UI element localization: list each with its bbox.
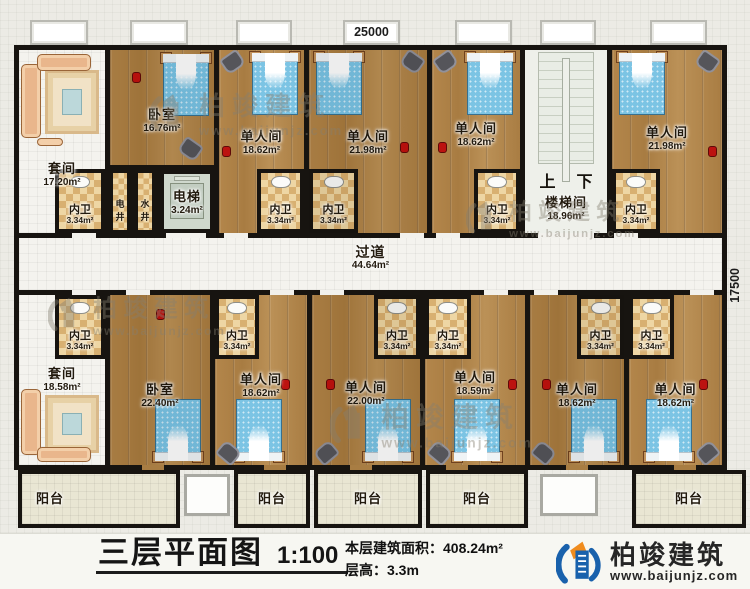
chair [694, 50, 722, 75]
door-opening [436, 233, 460, 238]
balcony: 阳台 [632, 470, 746, 528]
stool [699, 379, 708, 390]
room-name: 阳台 [36, 492, 64, 507]
toilet-icon [626, 176, 646, 188]
door-opening [72, 233, 96, 238]
balcony: 阳台 [18, 470, 180, 528]
stool [156, 309, 165, 320]
room-name: 内卫 [633, 330, 670, 343]
sofa [21, 54, 103, 146]
room-area: 44.64m² [19, 260, 722, 272]
room-suite-bottom: 内卫 3.34m² 套间 18.58m² [19, 295, 105, 465]
floorplan-canvas: 25000 17500 套间 17.20m² 内卫 3.34m² [0, 0, 750, 589]
brand-logo-icon [556, 538, 602, 586]
shaft-label: 水井 [138, 197, 152, 223]
room-name: 阳台 [238, 492, 306, 507]
bed [313, 51, 365, 117]
title-block: 三层平面图 1:100 本层建筑面积：408.24m² 层高：3.3m 柏竣建筑… [0, 533, 750, 589]
corridor: 过道 44.64m² [19, 238, 722, 290]
floor-area-line: 本层建筑面积：408.24m² [345, 538, 503, 560]
blanket [584, 425, 604, 461]
bathroom: 内卫 3.34m² [309, 169, 358, 233]
room-name: 单人间 [309, 130, 427, 145]
room-name: 内卫 [581, 330, 620, 343]
chair [426, 439, 454, 465]
stool [400, 142, 409, 153]
room-stairwell: 上 下 楼梯间 18.96m² [525, 50, 607, 233]
window [455, 20, 512, 45]
room-single-t2: 单人间 21.98m² 内卫 3.34m² [309, 50, 427, 233]
shaft-water: 水井 [135, 170, 155, 233]
drawing-title: 三层平面图 [98, 537, 263, 568]
bed [616, 51, 668, 117]
room-name: 套间 [19, 367, 105, 382]
toilet-icon [271, 176, 291, 188]
door-opening [534, 290, 558, 295]
rug-center [62, 89, 81, 115]
room-name: 单人间 [215, 373, 307, 388]
toilet-icon [642, 302, 662, 314]
toilet-icon [591, 302, 611, 314]
door-opening [224, 233, 248, 238]
room-bedroom-top: 卧室 16.76m² [110, 50, 214, 165]
sofa-back [21, 64, 41, 138]
bathroom: 内卫 3.34m² [257, 169, 304, 233]
toilet-icon [70, 176, 90, 188]
stool [222, 146, 231, 157]
balcony: 阳台 [426, 470, 528, 528]
room-single-b5: 内卫 3.34m² 单人间 18.62m² [629, 295, 722, 465]
bathroom: 内卫 3.34m² [577, 295, 624, 359]
sofa-seat [37, 138, 63, 146]
rug [45, 395, 99, 453]
blanket [265, 53, 285, 89]
room-name: 内卫 [59, 330, 101, 343]
stool [508, 379, 517, 390]
room-single-t3: 单人间 18.62m² 内卫 3.34m² [432, 50, 520, 233]
blanket [632, 53, 652, 89]
door-opening [690, 290, 714, 295]
bed [152, 397, 204, 463]
room-name: 内卫 [429, 330, 467, 343]
shaft-label: 电井 [113, 197, 127, 223]
room-area: 3.34m² [581, 342, 620, 352]
room-name: 楼梯间 [525, 196, 607, 211]
chair [432, 50, 459, 75]
dimension-right: 17500 [728, 268, 742, 303]
bed [451, 397, 503, 463]
floor-height-line: 层高：3.3m [345, 560, 503, 582]
stool [542, 379, 551, 390]
toilet-icon [227, 302, 247, 314]
drawing-scale: 1:100 [277, 544, 338, 568]
blanket [378, 425, 398, 461]
chair [177, 136, 205, 163]
stool [132, 72, 141, 83]
bed [464, 51, 516, 117]
bathroom: 内卫 3.34m² [629, 295, 674, 359]
building-outline: 套间 17.20m² 内卫 3.34m² 卧室 16.76m² [14, 45, 727, 470]
toilet-icon [70, 302, 90, 314]
door-opening [166, 233, 206, 238]
brand-url: www.baijunjz.com [610, 568, 738, 583]
bed [233, 397, 285, 463]
bathroom: 内卫 3.34m² [425, 295, 471, 359]
room-elevator: 电梯 3.24m² [160, 170, 214, 233]
room-name: 单人间 [219, 130, 304, 145]
stool [326, 379, 335, 390]
bed [362, 397, 414, 463]
room-area: 21.98m² [309, 145, 427, 157]
blanket [467, 425, 487, 461]
room-area: 3.34m² [633, 342, 670, 352]
sofa [21, 387, 103, 463]
elevator-car [170, 183, 204, 219]
blanket [329, 53, 349, 89]
window [540, 474, 598, 516]
door-opening [566, 465, 588, 470]
room-area: 3.34m² [59, 342, 101, 352]
room-single-b4: 内卫 3.34m² 单人间 18.62m² [530, 295, 624, 465]
room-name: 内卫 [59, 204, 101, 217]
door-opening [538, 233, 594, 238]
blanket [480, 53, 500, 89]
door-opening [72, 290, 96, 295]
room-suite-top: 套间 17.20m² 内卫 3.34m² [19, 50, 105, 233]
drawing-info: 本层建筑面积：408.24m² 层高：3.3m [345, 538, 503, 581]
window [130, 20, 188, 45]
window [650, 20, 707, 45]
blanket [168, 425, 188, 461]
room-area: 3.34m² [616, 216, 656, 226]
room-single-b3: 内卫 3.34m² 单人间 18.59m² [425, 295, 525, 465]
room-area: 16.76m² [110, 123, 214, 135]
door-opening [400, 233, 424, 238]
door-opening [484, 290, 508, 295]
window [236, 20, 292, 45]
room-area: 3.34m² [429, 342, 467, 352]
rug-center [62, 413, 81, 436]
chair [399, 50, 427, 75]
window [30, 20, 88, 45]
room-name: 过道 [19, 244, 722, 260]
room-single-t1: 单人间 18.62m² 内卫 3.34m² [219, 50, 304, 233]
stool [438, 142, 447, 153]
room-single-t4: 单人间 21.98m² 内卫 3.34m² [612, 50, 722, 233]
stair-rail [562, 58, 570, 182]
room-area: 3.34m² [59, 216, 101, 226]
toilet-icon [387, 302, 407, 314]
stool [281, 379, 290, 390]
room-area: 3.34m² [313, 216, 354, 226]
sofa-back [21, 389, 41, 455]
toilet-icon [438, 302, 458, 314]
room-area: 3.34m² [378, 342, 416, 352]
stool [708, 146, 717, 157]
toilet-icon [487, 176, 507, 188]
blanket [176, 54, 196, 90]
room-name: 内卫 [219, 330, 255, 343]
window [540, 20, 596, 45]
chair [694, 439, 722, 465]
bathroom: 内卫 3.34m² [55, 295, 105, 359]
chair [530, 439, 557, 465]
room-name: 阳台 [430, 492, 524, 507]
sofa-seat [37, 447, 91, 462]
chair [219, 50, 246, 75]
blanket [659, 425, 679, 461]
bathroom: 内卫 3.34m² [612, 169, 660, 233]
window [184, 474, 230, 516]
room-area: 3.34m² [219, 342, 255, 352]
room-name: 单人间 [432, 122, 520, 137]
brand-footer: 柏竣建筑 www.baijunjz.com [556, 538, 738, 586]
bathroom: 内卫 3.34m² [474, 169, 520, 233]
bed [160, 52, 212, 118]
room-single-b2: 内卫 3.34m² 单人间 22.00m² [312, 295, 420, 465]
room-name: 阳台 [318, 492, 418, 507]
balcony: 阳台 [234, 470, 310, 528]
blanket [249, 425, 269, 461]
bed [249, 51, 301, 117]
room-single-b1: 内卫 3.34m² 单人间 18.62m² [215, 295, 307, 465]
elevator-door [174, 176, 200, 181]
room-name: 阳台 [636, 492, 742, 507]
shaft-electric: 电井 [110, 170, 130, 233]
room-name: 单人间 [629, 383, 722, 398]
room-area: 3.34m² [478, 216, 516, 226]
room-name: 内卫 [616, 204, 656, 217]
door-opening [614, 233, 638, 238]
room-name: 内卫 [313, 204, 354, 217]
room-area: 18.62m² [219, 145, 304, 157]
rug [45, 70, 99, 134]
bathroom: 内卫 3.34m² [374, 295, 420, 359]
room-name: 内卫 [261, 204, 300, 217]
stair-down-label: 下 [576, 168, 592, 192]
stair-up-label: 上 [539, 168, 555, 192]
room-area: 21.98m² [612, 141, 722, 153]
brand-name: 柏竣建筑 [610, 542, 738, 568]
door-opening [126, 290, 150, 295]
room-bedroom-bottom: 卧室 22.40m² [110, 295, 210, 465]
balcony: 阳台 [314, 470, 422, 528]
dimension-top: 25000 [343, 25, 400, 39]
door-opening [320, 290, 344, 295]
bed [568, 397, 620, 463]
toilet-icon [324, 176, 344, 188]
room-area: 18.96m² [525, 211, 607, 223]
room-name: 单人间 [612, 126, 722, 141]
chair [313, 439, 341, 465]
room-name: 内卫 [478, 204, 516, 217]
bathroom: 内卫 3.34m² [215, 295, 259, 359]
bathroom: 内卫 3.34m² [55, 169, 105, 233]
bed [643, 397, 695, 463]
sofa-seat [37, 54, 91, 71]
room-name: 内卫 [378, 330, 416, 343]
room-name: 卧室 [110, 383, 210, 398]
room-area: 3.34m² [261, 216, 300, 226]
drawing-title-group: 三层平面图 1:100 [96, 537, 348, 574]
door-opening [270, 290, 294, 295]
